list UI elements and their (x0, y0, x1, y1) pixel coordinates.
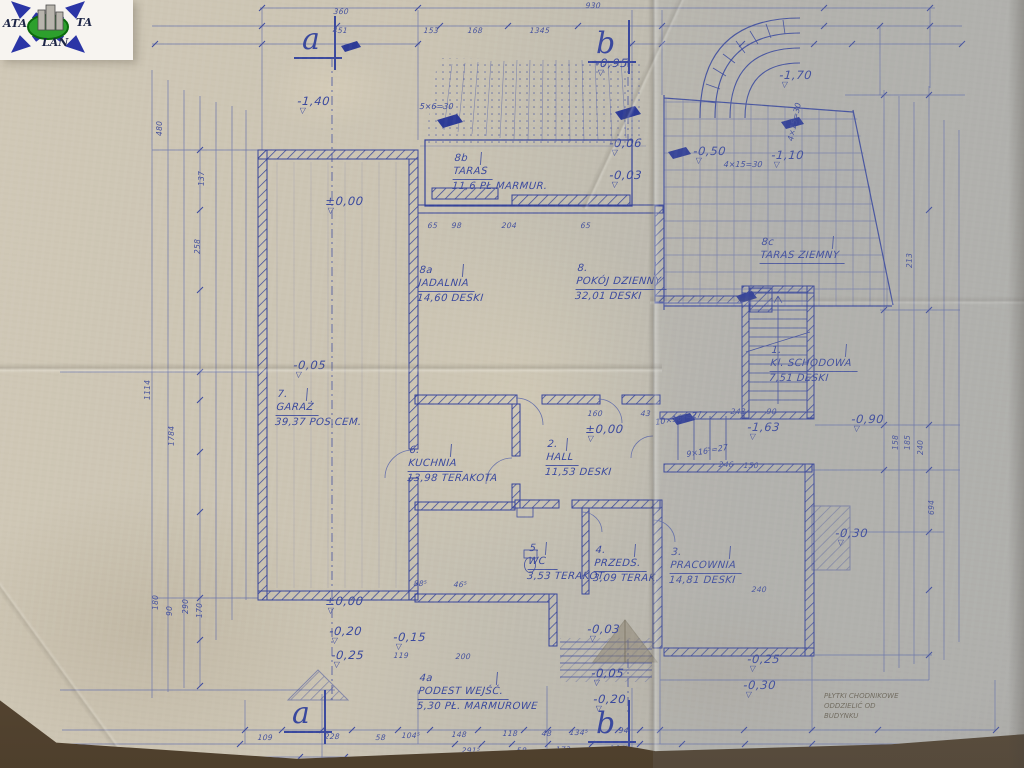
level-triangle-icon: ▽ (611, 150, 641, 155)
photo-of-blueprint: 8bTARAS11,6 PŁ.MARMUR.8aJADALNIA14,60 DE… (0, 0, 1024, 768)
level-marker: -1,63▽ (746, 420, 780, 439)
room-label: 4aPODEST WEJŚĆ.5,30 PŁ. MARMUROWE (416, 672, 541, 713)
logo-text-lan: LAN (42, 36, 68, 49)
dimension: 200 (455, 652, 471, 661)
room-title: 4aPODEST WEJŚĆ. (418, 672, 512, 700)
dimension: 170 (195, 603, 204, 618)
level-triangle-icon: ▽ (837, 540, 867, 545)
room-number: 3. (671, 546, 731, 559)
dimension: 118 (502, 729, 518, 738)
dimension: 694 (927, 500, 936, 515)
dimension: 94 (618, 726, 629, 735)
level-marker: -0,50▽ (692, 144, 726, 163)
dimension: 148 (451, 730, 467, 739)
logo-buildings (38, 5, 63, 30)
dimension: 291⁵ (461, 746, 480, 755)
dimension: 240 (751, 585, 767, 594)
level-triangle-icon: ▽ (395, 644, 425, 649)
level-triangle-icon: ▽ (299, 108, 329, 113)
dimension: 158 (891, 435, 900, 450)
dimension: 360 (580, 758, 596, 767)
room-name: PODEST WEJŚĆ. (418, 685, 504, 698)
dimension: 109 (257, 733, 273, 742)
room-name: TARAS (453, 165, 489, 178)
section-letter: b (596, 30, 615, 57)
section-marker: a (292, 700, 310, 727)
pencil-note-line: PŁYTKI CHODNIKOWE (824, 692, 899, 702)
room-area-floor: 39,37 POS.CEM. (274, 416, 362, 429)
level-triangle-icon: ▽ (749, 666, 779, 671)
room-title: 7.GARAŻ (276, 388, 322, 416)
dimension: 58 (375, 733, 386, 742)
level-marker: -0,25▽ (330, 648, 364, 667)
room-title: 3.PRACOWNIA (670, 546, 744, 574)
level-marker: -0,05▽ (292, 358, 326, 377)
room-title: 8cTARAS ZIEMNY (760, 236, 848, 264)
dimension: 243 (730, 407, 746, 416)
level-marker: -0,15▽ (392, 630, 426, 649)
level-marker: -1,40▽ (296, 94, 330, 113)
dimension: 360 (333, 7, 349, 16)
logo-text-ta: TA (76, 16, 92, 29)
dimension: 153 (423, 26, 439, 35)
blueprint-paper: 8bTARAS11,6 PŁ.MARMUR.8aJADALNIA14,60 DE… (0, 0, 1024, 768)
room-title: 4.PRZEDS. (594, 544, 649, 572)
room-name: POKÓJ DZIENNY (576, 275, 662, 288)
level-triangle-icon: ▽ (327, 608, 363, 613)
section-marker: b (596, 710, 615, 737)
level-marker: -0,30▽ (742, 678, 776, 697)
dimension: 58 (516, 746, 527, 755)
pencil-note-line: BUDYNKU (824, 712, 899, 722)
level-triangle-icon: ▽ (853, 426, 883, 431)
dimension: 168 (467, 26, 483, 35)
level-marker: -0,90▽ (850, 412, 884, 431)
dimension: 246 (718, 460, 734, 469)
dimension: 1114 (143, 380, 152, 400)
stair-note: 4×15=30 (786, 102, 803, 142)
pencil-note: PŁYTKI CHODNIKOWEODDZIELIĆ ODBUDYNKU (824, 692, 899, 721)
room-label: 8cTARAS ZIEMNY (760, 236, 848, 264)
room-number: 8. (577, 262, 656, 275)
dimension: 65 (427, 221, 438, 230)
level-triangle-icon: ▽ (589, 636, 619, 641)
room-title: 5.WC (528, 542, 561, 570)
room-area-floor: 11,53 DESKI (544, 466, 612, 479)
room-name: GARAŻ (276, 401, 315, 414)
dimension: 173 (555, 745, 571, 754)
room-title: 6.KUCHNIA (408, 444, 465, 472)
level-marker: -0,20▽ (328, 624, 362, 643)
room-number: 5. (529, 542, 548, 555)
room-number: 2. (547, 438, 568, 451)
room-area-floor: 11,6 PŁ.MARMUR. (451, 180, 548, 193)
dimension: 213 (905, 253, 914, 268)
stair-note: 10×16⁵=27 (655, 410, 702, 427)
level-triangle-icon: ▽ (749, 434, 779, 439)
level-triangle-icon: ▽ (587, 436, 623, 441)
dimension: 180 (151, 595, 160, 610)
atalan-logo: ATA TA LAN (0, 0, 133, 60)
room-label: 2.HALL11,53 DESKI (544, 438, 614, 479)
level-marker: ±0,00▽ (584, 422, 624, 441)
section-letter: a (302, 26, 320, 53)
room-name: PRACOWNIA (670, 559, 737, 572)
dimension: 43 (640, 409, 651, 418)
dimension: 137 (197, 171, 206, 186)
room-area-floor: 7,51 DESKI (768, 372, 857, 385)
room-name: Kl. SCHODOWA (770, 357, 853, 370)
room-number: 8c (761, 236, 834, 249)
room-title: 8.POKÓJ DZIENNY (576, 262, 669, 290)
dimension: 451 (332, 26, 348, 35)
dimension: 1345 (529, 26, 550, 35)
level-triangle-icon: ▽ (593, 680, 623, 685)
room-area-floor: 32,01 DESKI (574, 290, 666, 303)
room-name: KUCHNIA (408, 457, 458, 470)
dimension: 88⁵ (413, 579, 427, 588)
room-title: 8bTARAS (453, 152, 496, 180)
room-label: 8bTARAS11,6 PŁ.MARMUR. (451, 152, 550, 193)
room-number: 8b (454, 152, 483, 165)
level-marker: -0,25▽ (746, 652, 780, 671)
stair-note: 4×15=30 (723, 160, 763, 169)
room-name: JADALNIA (418, 277, 470, 290)
room-title: 8aJADALNIA (418, 264, 477, 292)
dimension: 204 (501, 221, 517, 230)
dimension: 46⁵ (453, 580, 467, 589)
dimension: 104⁵ (401, 731, 420, 740)
dimension: 240 (916, 440, 925, 455)
dimension: 1784 (167, 426, 176, 446)
room-number: 6. (409, 444, 452, 457)
stair-note: 5×6=30 (419, 102, 454, 111)
room-label: 4.PRZEDS.3,09 TERAK. (592, 544, 662, 585)
room-label: 6.KUCHNIA13,98 TERAKOTA (406, 444, 500, 485)
level-marker: ±0,00▽ (324, 594, 364, 613)
dimension: 119 (393, 651, 409, 660)
room-number: 1. (771, 344, 847, 357)
section-letter: b (596, 710, 615, 737)
level-marker: -1,70▽ (778, 68, 812, 87)
room-number: 8a (419, 264, 464, 277)
level-triangle-icon: ▽ (781, 82, 811, 87)
dimension: 90 (766, 407, 777, 416)
level-triangle-icon: ▽ (773, 162, 803, 167)
dimension: 228 (324, 732, 340, 741)
pencil-note-line: ODDZIELIĆ OD (824, 702, 899, 712)
level-triangle-icon: ▽ (611, 182, 641, 187)
room-area-floor: 14,81 DESKI (668, 574, 741, 587)
dimension: 90 (165, 606, 174, 616)
dimension: 390 (317, 759, 333, 768)
room-number: 4. (595, 544, 636, 557)
level-marker: -0,30▽ (834, 526, 868, 545)
dimension: 185 (903, 435, 912, 450)
dimension: 290 (181, 599, 190, 614)
stair-note: 9×16⁵=27 (686, 443, 728, 459)
dimension: 258 (193, 239, 202, 254)
room-title: 2.HALL (546, 438, 582, 466)
room-name: WC (528, 555, 554, 568)
logo-text-ata: ATA (3, 17, 27, 30)
label-layer: 8bTARAS11,6 PŁ.MARMUR.8aJADALNIA14,60 DE… (0, 0, 1024, 768)
room-area-floor: 5,30 PŁ. MARMUROWE (416, 700, 538, 713)
level-triangle-icon: ▽ (695, 158, 725, 163)
dimension: 480 (155, 121, 164, 136)
dimension: 48 (541, 729, 552, 738)
room-area-floor: 13,98 TERAKOTA (406, 472, 498, 485)
level-triangle-icon: ▽ (745, 692, 775, 697)
section-marker: b (596, 30, 615, 57)
room-label: 7.GARAŻ39,37 POS.CEM. (274, 388, 364, 429)
level-triangle-icon: ▽ (295, 372, 325, 377)
room-name: PRZEDS. (594, 557, 642, 570)
section-marker: a (302, 26, 320, 53)
room-label: 8.POKÓJ DZIENNY32,01 DESKI (574, 262, 669, 303)
room-area-floor: 3,09 TERAK. (592, 572, 659, 585)
dimension: 164⁵ (609, 744, 628, 753)
room-number: 4a (419, 672, 498, 685)
room-name: TARAS ZIEMNY (760, 249, 840, 262)
room-name: HALL (546, 451, 574, 464)
dimension: 160 (587, 409, 603, 418)
dimension: 98 (451, 221, 462, 230)
level-marker: ±0,00▽ (324, 194, 364, 213)
room-number: 7. (277, 388, 309, 401)
level-marker: -1,10▽ (770, 148, 804, 167)
dimension: 150 (743, 461, 759, 470)
level-triangle-icon: ▽ (331, 638, 361, 643)
dimension: 930 (585, 1, 601, 10)
dimension: 134⁵ (569, 728, 588, 737)
level-triangle-icon: ▽ (333, 662, 363, 667)
level-marker: -0,06▽ (608, 136, 642, 155)
room-title: 1.Kl. SCHODOWA (770, 344, 860, 372)
dimension: 790 (499, 758, 515, 767)
level-marker: -0,05▽ (590, 666, 624, 685)
room-area-floor: 14,60 DESKI (416, 292, 484, 305)
section-letter: a (292, 700, 310, 727)
room-label: 8aJADALNIA14,60 DESKI (416, 264, 486, 305)
room-label: 3.PRACOWNIA14,81 DESKI (668, 546, 743, 587)
dimension: 65 (580, 221, 591, 230)
room-label: 1.Kl. SCHODOWA7,51 DESKI (768, 344, 859, 385)
level-marker: -0,03▽ (586, 622, 620, 641)
level-triangle-icon: ▽ (327, 208, 363, 213)
level-marker: -0,03▽ (608, 168, 642, 187)
level-triangle-icon: ▽ (597, 70, 627, 75)
